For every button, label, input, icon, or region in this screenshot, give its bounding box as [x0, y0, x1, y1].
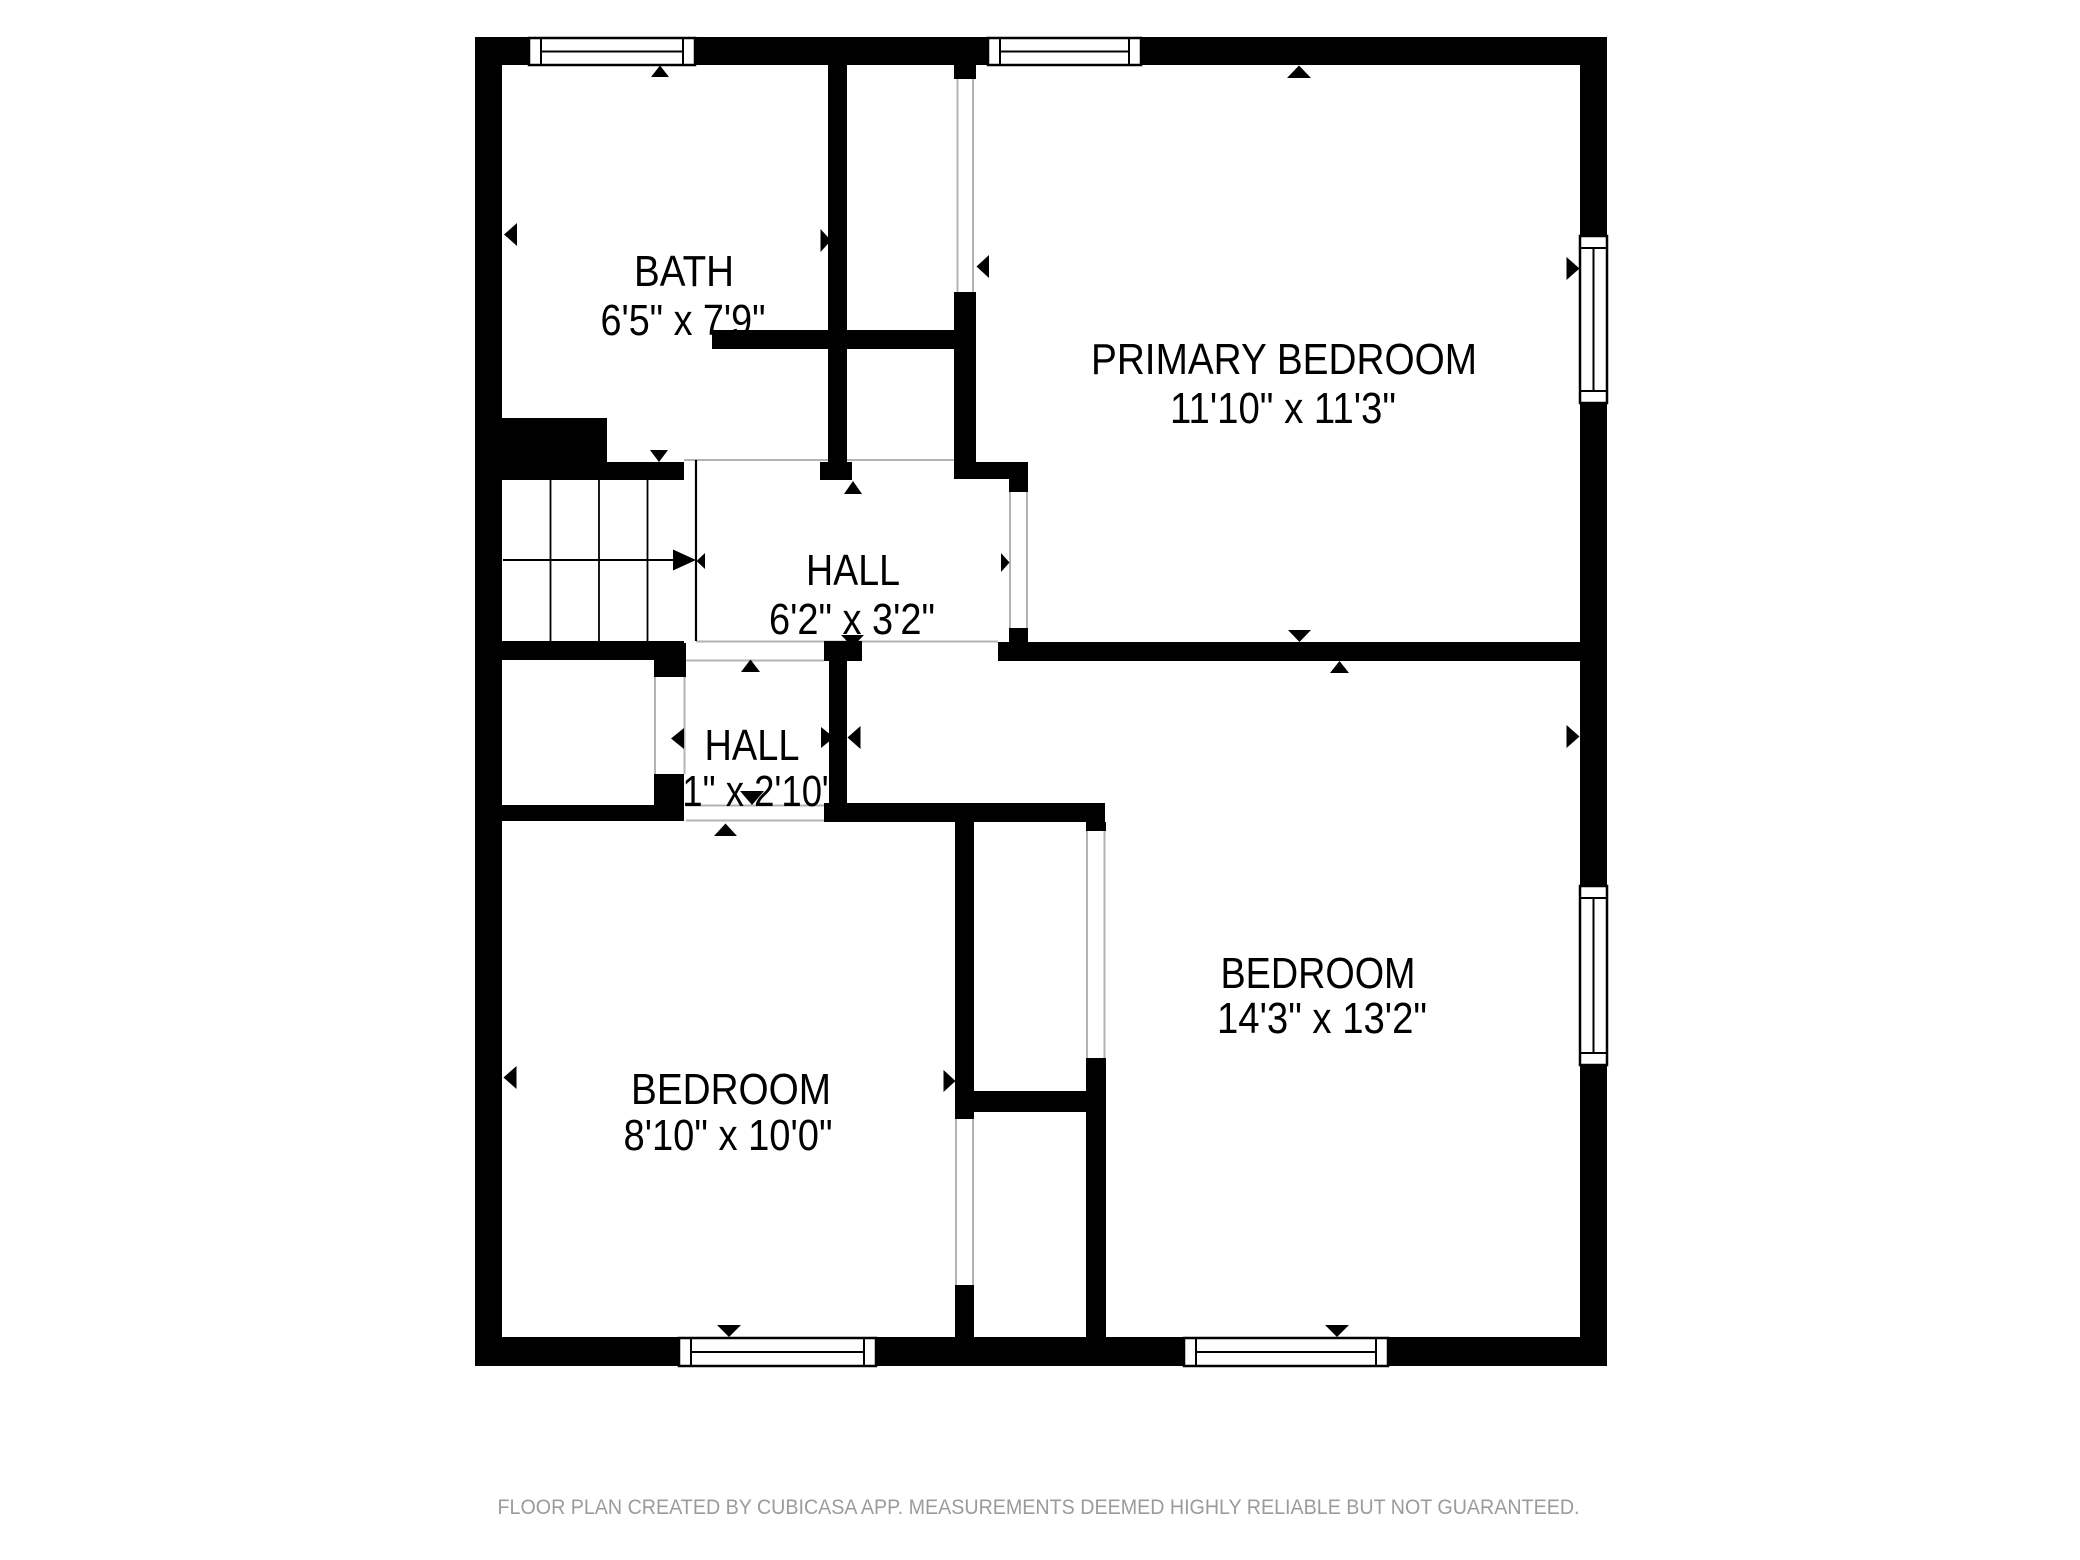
svg-text:BATH: BATH — [634, 247, 734, 296]
svg-text:6'5" x 7'9": 6'5" x 7'9" — [601, 296, 766, 345]
svg-text:BEDROOM: BEDROOM — [1221, 949, 1416, 998]
svg-text:PRIMARY BEDROOM: PRIMARY BEDROOM — [1091, 335, 1477, 384]
svg-text:14'3" x 13'2": 14'3" x 13'2" — [1217, 994, 1427, 1043]
svg-text:FLOOR PLAN CREATED BY CUBICASA: FLOOR PLAN CREATED BY CUBICASA APP. MEAS… — [498, 1495, 1580, 1519]
svg-text:BEDROOM: BEDROOM — [631, 1065, 831, 1114]
svg-text:HALL: HALL — [705, 721, 800, 770]
svg-text:11'10" x 11'3": 11'10" x 11'3" — [1170, 384, 1396, 433]
svg-text:8'10" x 10'0": 8'10" x 10'0" — [624, 1111, 833, 1160]
svg-text:HALL: HALL — [806, 546, 900, 595]
svg-text:6'2" x 3'2": 6'2" x 3'2" — [769, 595, 935, 644]
svg-text:3'1" x 2'10": 3'1" x 2'10" — [655, 767, 835, 816]
